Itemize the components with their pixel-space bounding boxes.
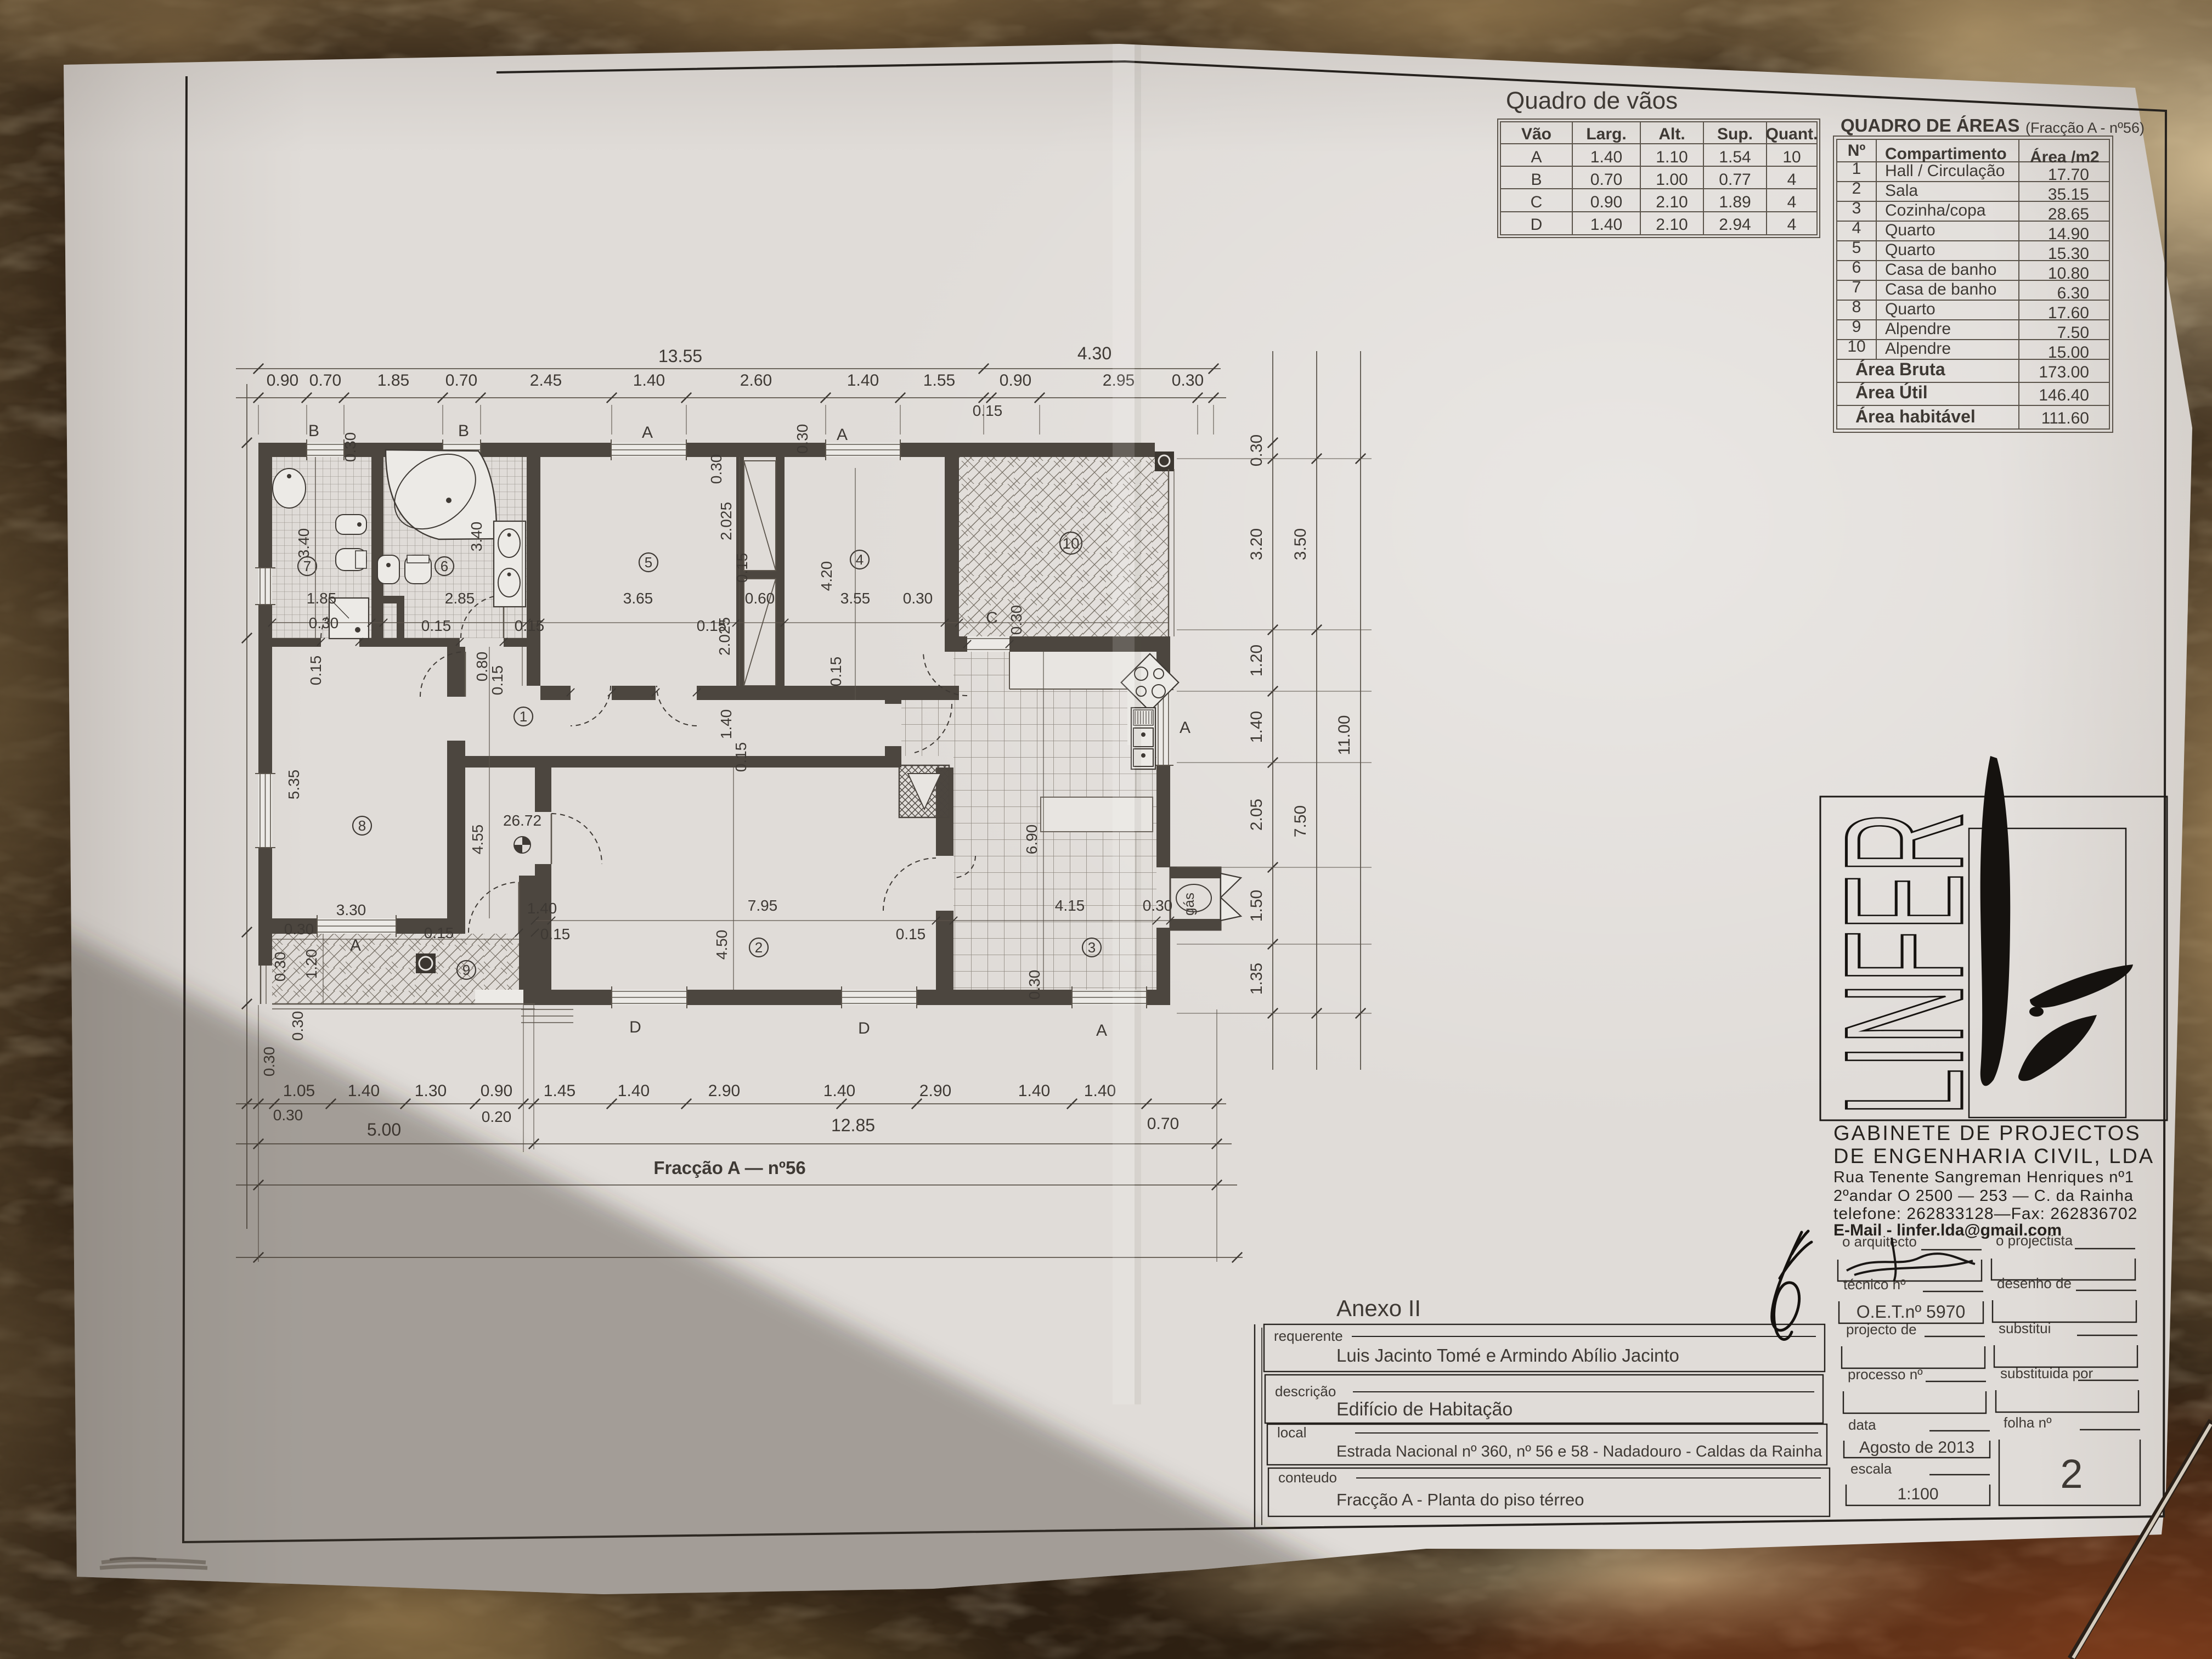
svg-text:Área habitável: Área habitável (1855, 407, 1976, 426)
svg-text:A: A (642, 424, 653, 442)
svg-text:Fracção A - Planta do piso tér: Fracção A - Planta do piso térreo (1336, 1490, 1584, 1509)
svg-text:Vão: Vão (1521, 125, 1551, 143)
svg-text:3: 3 (1852, 199, 1861, 217)
svg-text:DE ENGENHARIA CIVIL, LDA: DE ENGENHARIA CIVIL, LDA (1833, 1145, 2154, 1168)
svg-text:0.70: 0.70 (445, 371, 477, 390)
svg-text:1.54: 1.54 (1719, 148, 1751, 166)
svg-text:0.90: 0.90 (481, 1082, 512, 1100)
svg-text:6.90: 6.90 (1023, 825, 1040, 855)
svg-text:data: data (1848, 1417, 1876, 1433)
svg-text:0.30: 0.30 (1143, 897, 1173, 914)
svg-text:0.30: 0.30 (272, 952, 289, 982)
svg-text:0.15: 0.15 (515, 617, 545, 634)
svg-text:9: 9 (1852, 318, 1861, 336)
svg-text:17.70: 17.70 (2048, 166, 2089, 184)
svg-text:0.15: 0.15 (421, 617, 452, 634)
svg-text:0.30: 0.30 (903, 590, 933, 607)
svg-text:1.40: 1.40 (718, 709, 735, 740)
svg-text:o arquitecto: o arquitecto (1842, 1233, 1917, 1250)
svg-text:0.15: 0.15 (733, 553, 751, 583)
svg-text:0.77: 0.77 (1719, 171, 1751, 189)
svg-text:0.30: 0.30 (342, 432, 359, 462)
svg-text:0.70: 0.70 (1147, 1115, 1179, 1133)
svg-text:4.55: 4.55 (469, 825, 486, 855)
svg-text:0.30: 0.30 (1026, 970, 1043, 1000)
svg-text:6: 6 (1852, 258, 1861, 276)
svg-text:conteudo: conteudo (1278, 1469, 1337, 1486)
svg-text:3.40: 3.40 (295, 528, 312, 558)
svg-text:15.00: 15.00 (2048, 343, 2089, 362)
svg-text:26.72: 26.72 (503, 812, 541, 829)
svg-text:B: B (1531, 171, 1542, 189)
svg-text:D: D (858, 1019, 870, 1037)
svg-text:1.40: 1.40 (1590, 216, 1622, 234)
svg-text:0.30: 0.30 (1172, 371, 1204, 390)
svg-text:C: C (1531, 193, 1543, 211)
svg-text:0.90: 0.90 (1590, 193, 1622, 211)
svg-text:5: 5 (1852, 239, 1861, 257)
svg-text:telefone: 262833128—Fax: 262: telefone: 262833128—Fax: 262836702 (1833, 1205, 2137, 1223)
svg-text:A: A (1180, 719, 1190, 737)
svg-text:3.20: 3.20 (1248, 528, 1266, 560)
svg-text:1.35: 1.35 (1248, 963, 1266, 995)
svg-text:0.30: 0.30 (289, 1011, 306, 1041)
svg-text:D: D (1531, 216, 1543, 234)
svg-text:1.40: 1.40 (1248, 711, 1266, 743)
svg-text:A: A (837, 426, 848, 444)
svg-text:0.15: 0.15 (489, 665, 506, 696)
svg-text:Casa de banho: Casa de banho (1885, 280, 1997, 298)
svg-text:1.85: 1.85 (377, 371, 409, 390)
svg-text:3.30: 3.30 (336, 901, 366, 918)
svg-text:0.20: 0.20 (482, 1108, 512, 1125)
svg-text:Estrada Nacional nº 360, nº 56: Estrada Nacional nº 360, nº 56 e 58 - Na… (1336, 1443, 1822, 1460)
svg-text:GABINETE DE PROJECTOS: GABINETE DE PROJECTOS (1833, 1122, 2141, 1145)
svg-text:requerente: requerente (1274, 1328, 1343, 1344)
svg-text:1.40: 1.40 (823, 1082, 855, 1100)
svg-text:2.94: 2.94 (1719, 216, 1751, 234)
svg-text:D: D (629, 1018, 641, 1036)
svg-text:0.70: 0.70 (1590, 171, 1622, 189)
svg-text:0.30: 0.30 (309, 614, 339, 631)
svg-text:0.90: 0.90 (267, 371, 298, 390)
svg-text:1:100: 1:100 (1897, 1485, 1938, 1503)
svg-text:13.55: 13.55 (658, 346, 702, 366)
svg-text:10: 10 (1847, 337, 1865, 356)
svg-text:3.55: 3.55 (840, 590, 871, 607)
svg-text:gás: gás (1181, 893, 1197, 916)
svg-text:0.15: 0.15 (896, 926, 926, 943)
svg-text:1.40: 1.40 (847, 371, 879, 390)
svg-text:0.15: 0.15 (973, 402, 1003, 419)
svg-text:2.90: 2.90 (919, 1082, 951, 1100)
svg-text:Cozinha/copa: Cozinha/copa (1885, 201, 1986, 219)
svg-text:Nº: Nº (1848, 142, 1866, 160)
svg-text:0.70: 0.70 (309, 371, 341, 390)
svg-text:QUADRO DE ÁREAS: QUADRO DE ÁREAS (1841, 115, 2019, 136)
svg-text:4: 4 (1787, 171, 1797, 189)
svg-text:0.15: 0.15 (732, 742, 749, 772)
svg-text:1: 1 (1852, 160, 1861, 178)
svg-text:35.15: 35.15 (2048, 185, 2089, 204)
svg-text:0.15: 0.15 (424, 924, 454, 941)
svg-text:1.20: 1.20 (303, 949, 320, 979)
svg-text:7: 7 (1852, 278, 1861, 296)
svg-text:11.00: 11.00 (1335, 715, 1353, 755)
svg-text:0.15: 0.15 (307, 656, 324, 686)
svg-text:A: A (1531, 148, 1542, 166)
svg-text:5.35: 5.35 (285, 770, 302, 800)
svg-text:folha nº: folha nº (2004, 1414, 2052, 1431)
svg-text:C: C (986, 609, 998, 627)
svg-text:0.30: 0.30 (1008, 605, 1025, 635)
svg-text:0.30: 0.30 (1248, 435, 1266, 466)
svg-text:processo nº: processo nº (1848, 1366, 1923, 1383)
svg-text:1.85: 1.85 (307, 590, 337, 607)
svg-text:2: 2 (2060, 1451, 2083, 1497)
svg-text:8: 8 (1852, 298, 1861, 316)
svg-text:Compartimento: Compartimento (1885, 145, 2007, 163)
svg-text:12.85: 12.85 (831, 1115, 875, 1135)
svg-text:Quarto: Quarto (1885, 241, 1936, 259)
svg-text:(Fracção A - nº56): (Fracção A - nº56) (2025, 120, 2145, 136)
svg-text:0.15: 0.15 (827, 657, 844, 687)
svg-text:substituida por: substituida por (2000, 1365, 2093, 1381)
svg-text:substitui: substitui (1999, 1320, 2051, 1336)
svg-text:Alpendre: Alpendre (1885, 320, 1951, 338)
svg-text:2.90: 2.90 (708, 1082, 740, 1100)
svg-text:10: 10 (1062, 535, 1079, 552)
svg-text:1.40: 1.40 (1018, 1082, 1050, 1100)
svg-text:1.20: 1.20 (1248, 645, 1266, 676)
svg-text:2: 2 (1852, 179, 1861, 198)
svg-text:6.30: 6.30 (2057, 284, 2089, 302)
svg-text:Casa de banho: Casa de banho (1885, 261, 1997, 279)
svg-text:Área /m2: Área /m2 (2030, 148, 2100, 166)
svg-text:111.60: 111.60 (2041, 409, 2089, 427)
svg-text:Área Útil: Área Útil (1855, 382, 1928, 402)
svg-text:LINFER: LINFER (1810, 811, 1997, 1116)
svg-text:3.40: 3.40 (468, 522, 485, 552)
svg-text:0.15: 0.15 (697, 617, 727, 634)
svg-text:B: B (458, 422, 469, 440)
svg-text:Rua Tenente Sangreman Henri: Rua Tenente Sangreman Henriques nº1 (1833, 1169, 2134, 1186)
svg-text:10: 10 (1782, 148, 1801, 166)
svg-text:4.15: 4.15 (1055, 897, 1085, 914)
svg-text:A: A (1096, 1022, 1107, 1040)
svg-text:1.40: 1.40 (1084, 1082, 1116, 1100)
svg-text:7.50: 7.50 (1291, 805, 1310, 837)
svg-text:2.10: 2.10 (1656, 216, 1688, 234)
svg-text:15.30: 15.30 (2048, 245, 2089, 263)
svg-text:Hall / Circulação: Hall / Circulação (1885, 162, 2005, 180)
svg-text:Quarto: Quarto (1885, 300, 1936, 318)
svg-text:146.40: 146.40 (2039, 386, 2089, 404)
svg-text:desenho de: desenho de (1997, 1275, 2072, 1291)
svg-text:0.60: 0.60 (745, 590, 775, 607)
svg-text:técnico nº: técnico nº (1843, 1276, 1906, 1293)
svg-text:6: 6 (441, 558, 448, 574)
svg-text:O.E.T.nº 5970: O.E.T.nº 5970 (1857, 1302, 1965, 1322)
svg-text:0.30: 0.30 (794, 424, 811, 454)
svg-text:local: local (1277, 1424, 1306, 1441)
svg-text:Quadro de vãos: Quadro de vãos (1506, 87, 1678, 114)
svg-text:1.00: 1.00 (1656, 171, 1688, 189)
svg-text:Alpendre: Alpendre (1885, 340, 1951, 358)
svg-text:1.40: 1.40 (618, 1082, 650, 1100)
svg-text:7: 7 (303, 558, 311, 574)
svg-text:4.50: 4.50 (713, 930, 730, 960)
svg-text:2: 2 (755, 939, 763, 956)
svg-text:Anexo II: Anexo II (1336, 1295, 1421, 1321)
svg-text:Fracção A — nº56: Fracção A — nº56 (653, 1158, 805, 1178)
svg-text:3.50: 3.50 (1291, 528, 1310, 560)
svg-text:0.30: 0.30 (708, 454, 725, 484)
svg-text:Alt.: Alt. (1658, 125, 1685, 143)
svg-text:0.90: 0.90 (1000, 371, 1031, 390)
svg-text:4: 4 (1787, 193, 1797, 211)
svg-text:4.20: 4.20 (818, 561, 835, 591)
svg-text:0.80: 0.80 (473, 652, 490, 682)
svg-text:1.50: 1.50 (1248, 890, 1266, 922)
svg-text:B: B (308, 422, 319, 440)
svg-text:1.89: 1.89 (1719, 193, 1751, 211)
svg-text:2.45: 2.45 (530, 371, 562, 390)
svg-text:Larg.: Larg. (1586, 125, 1626, 143)
svg-text:1: 1 (520, 708, 527, 725)
svg-text:1.40: 1.40 (633, 371, 665, 390)
svg-text:2.85: 2.85 (445, 590, 475, 607)
svg-text:7.95: 7.95 (748, 897, 778, 914)
svg-text:descrição: descrição (1275, 1383, 1336, 1400)
svg-text:Quarto: Quarto (1885, 221, 1936, 239)
svg-text:4: 4 (1852, 219, 1861, 237)
svg-text:Edifício de Habitação: Edifício de Habitação (1336, 1399, 1513, 1420)
svg-text:10.80: 10.80 (2048, 264, 2089, 283)
svg-text:3.65: 3.65 (623, 590, 653, 607)
svg-text:escala: escala (1850, 1460, 1892, 1477)
svg-text:o projectista: o projectista (1996, 1232, 2073, 1249)
svg-text:4: 4 (856, 551, 864, 568)
svg-text:1.40: 1.40 (1590, 148, 1622, 166)
svg-text:5: 5 (645, 554, 652, 571)
svg-text:Sala: Sala (1885, 182, 1918, 200)
svg-text:28.65: 28.65 (2048, 205, 2089, 223)
svg-text:173.00: 173.00 (2039, 363, 2089, 381)
svg-text:17.60: 17.60 (2048, 304, 2089, 322)
svg-text:1.55: 1.55 (923, 371, 955, 390)
svg-text:Luis Jacinto Tomé e Armindo Ab: Luis Jacinto Tomé e Armindo Abílio Jacin… (1336, 1345, 1679, 1365)
svg-text:7.50: 7.50 (2057, 324, 2089, 342)
svg-text:4: 4 (1787, 216, 1797, 234)
svg-text:2.05: 2.05 (1248, 799, 1266, 831)
svg-text:Agosto de 2013: Agosto de 2013 (1859, 1438, 1974, 1457)
svg-text:3: 3 (1088, 939, 1096, 956)
svg-text:14.90: 14.90 (2048, 225, 2089, 243)
svg-text:4.30: 4.30 (1077, 343, 1111, 363)
svg-text:projecto de: projecto de (1846, 1321, 1917, 1338)
svg-text:Sup.: Sup. (1717, 125, 1753, 143)
svg-text:1.10: 1.10 (1656, 148, 1688, 166)
svg-text:1.30: 1.30 (415, 1082, 447, 1100)
svg-text:8: 8 (358, 817, 366, 834)
svg-text:0.15: 0.15 (540, 926, 571, 943)
svg-text:2.025: 2.025 (718, 502, 735, 540)
svg-text:2.10: 2.10 (1656, 193, 1688, 211)
svg-text:2ºandar O 2500 — 253 — C: 2ºandar O 2500 — 253 — C. da Rainha (1833, 1187, 2134, 1205)
svg-text:1.40: 1.40 (527, 900, 557, 917)
svg-text:Quant.: Quant. (1766, 125, 1818, 143)
svg-text:2.60: 2.60 (740, 371, 772, 390)
svg-text:0.30: 0.30 (284, 921, 314, 938)
svg-text:1.45: 1.45 (544, 1082, 575, 1100)
svg-text:9: 9 (462, 962, 470, 978)
svg-text:Área Bruta: Área Bruta (1855, 359, 1945, 379)
